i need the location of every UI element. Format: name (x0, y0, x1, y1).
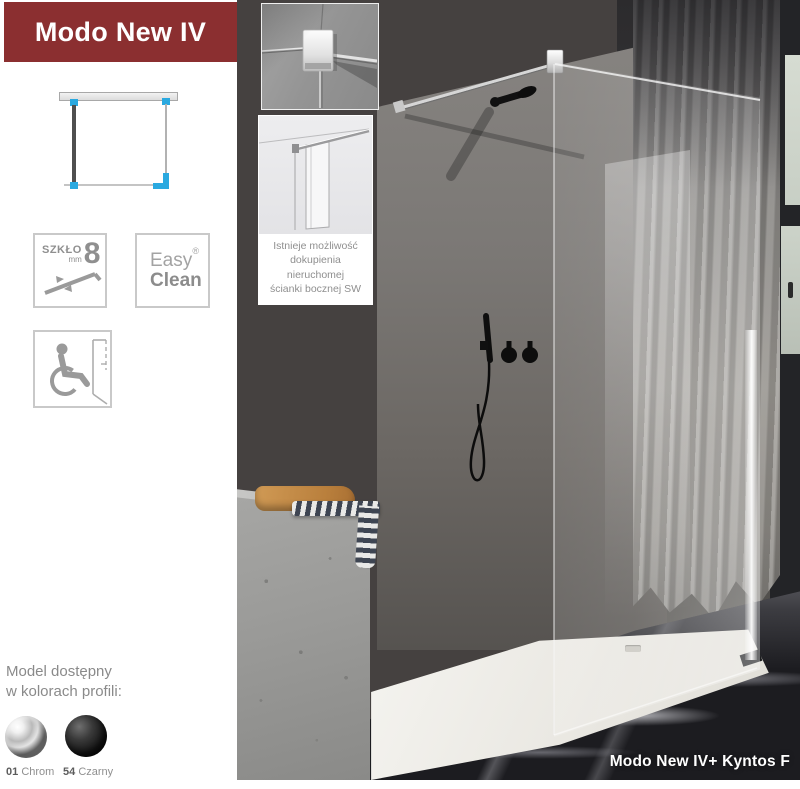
product-photo-walk-in-shower: Istnieje możliwość dokupienia nieruchome… (237, 0, 800, 780)
detail-inset-bracket-photo (261, 3, 379, 110)
note-line3: nieruchomej (262, 268, 369, 282)
glass-thickness-value: 8 (84, 241, 101, 267)
corner-marker (153, 183, 169, 189)
registered-mark: ® (192, 246, 199, 256)
side-wall-note: Istnieje możliwość dokupienia nieruchome… (259, 234, 372, 297)
swatch-code: 54 (63, 766, 75, 778)
note-line1: Istnieje możliwość (262, 239, 369, 253)
inset-shading (262, 4, 378, 109)
note-line4: ścianki bocznej SW (262, 282, 369, 296)
easy-clean-badge: Easy Clean ® (135, 233, 210, 308)
mixer-valve (522, 347, 538, 363)
easy-clean-word2: Clean (150, 271, 202, 291)
side-wall-drawing-graphics (259, 116, 371, 234)
glass-pane-icon (42, 267, 102, 297)
swatch-name: Czarny (78, 766, 113, 778)
note-line2: dokupienia (262, 253, 369, 267)
color-swatch-black (65, 715, 107, 757)
swatch-code: 01 (6, 766, 18, 778)
swatch-name: Chrom (21, 766, 54, 778)
glass-thickness-badge: SZKŁO mm 8 (33, 233, 107, 308)
top-view-schematic-diagram (40, 85, 190, 197)
side-wall-line-drawing (259, 116, 372, 234)
wheelchair-access-badge (33, 330, 112, 408)
color-swatch-chrome (5, 716, 47, 758)
easy-clean-word1: Easy (150, 251, 192, 271)
glass-reflection (605, 150, 690, 620)
glass-edge-highlight (745, 330, 757, 660)
heading-line1: Model dostępny (6, 662, 122, 682)
shower-arm-shadow (451, 112, 489, 176)
wheelchair-icon (35, 332, 110, 406)
catalog-page: { "banner": { "title": "Modo New IV", "b… (0, 0, 800, 789)
hand-shower-holder (480, 341, 488, 350)
mixer-valve (501, 347, 517, 363)
support-bar (400, 64, 555, 108)
swatch-label-black: 54 Czarny (63, 766, 113, 778)
detail-inset-side-wall-option: Istnieje możliwość dokupienia nieruchome… (258, 115, 373, 305)
wall-mount (393, 100, 406, 113)
profile-colors-heading: Model dostępny w kolorach profili: (6, 662, 122, 703)
glass-unit: mm (68, 256, 81, 265)
glass-panel-shape (72, 105, 76, 185)
product-title-banner: Modo New IV (4, 2, 237, 62)
photo-caption: Modo New IV+ Kyntos F (610, 753, 790, 771)
product-title: Modo New IV (35, 17, 206, 48)
heading-line2: w kolorach profili: (6, 682, 122, 702)
connector-marker (70, 182, 78, 189)
shower-hose (471, 362, 489, 480)
hand-shower-wand (486, 316, 490, 360)
swatch-label-chrome: 01 Chrom (6, 766, 54, 778)
